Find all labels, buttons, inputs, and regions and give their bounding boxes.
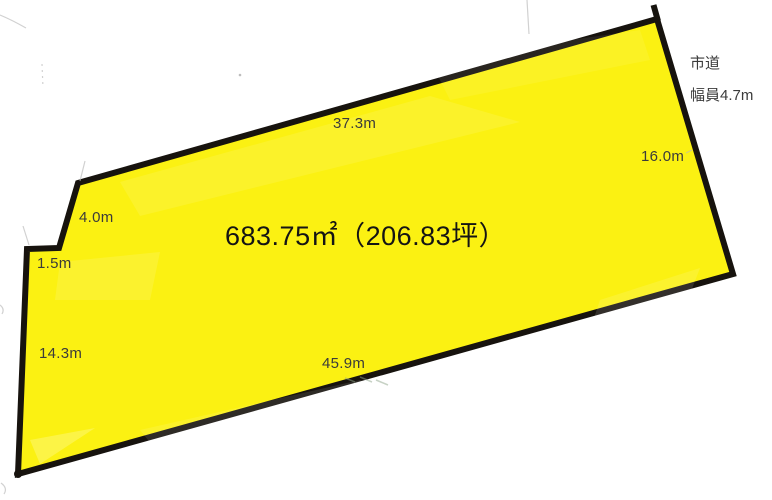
artifact-arc-top-left [0, 15, 26, 28]
artifact-dot [239, 74, 242, 77]
bottom-left-corner-stake [14, 470, 22, 478]
artifact-dashed-left [42, 64, 43, 88]
land-plot-diagram: 37.3m 16.0m 4.0m 1.5m 14.3m 45.9m 683.75… [0, 0, 772, 500]
dimension-right-edge: 16.0m [641, 149, 684, 166]
dimension-bottom-edge: 45.9m [322, 356, 365, 373]
artifact-arc-bottom-left [1, 483, 5, 494]
parcel-area-label: 683.75㎡（206.83坪） [225, 222, 506, 252]
artifact-tick-jog-vertex [23, 226, 29, 245]
artifact-arc-left [0, 305, 3, 314]
road-name-label: 市道 [690, 52, 753, 73]
dimension-top-edge: 37.3m [333, 116, 376, 133]
artifact-tick-top-left-vertex [80, 161, 85, 181]
dimension-left-jog-edge: 1.5m [37, 256, 72, 273]
artifact-line-top-center [527, 0, 529, 34]
dimension-upper-left-edge: 4.0m [79, 210, 114, 227]
road-annotation: 市道 幅員4.7m [690, 52, 753, 105]
road-width-label: 幅員4.7m [690, 84, 753, 105]
dimension-left-edge: 14.3m [39, 346, 82, 363]
